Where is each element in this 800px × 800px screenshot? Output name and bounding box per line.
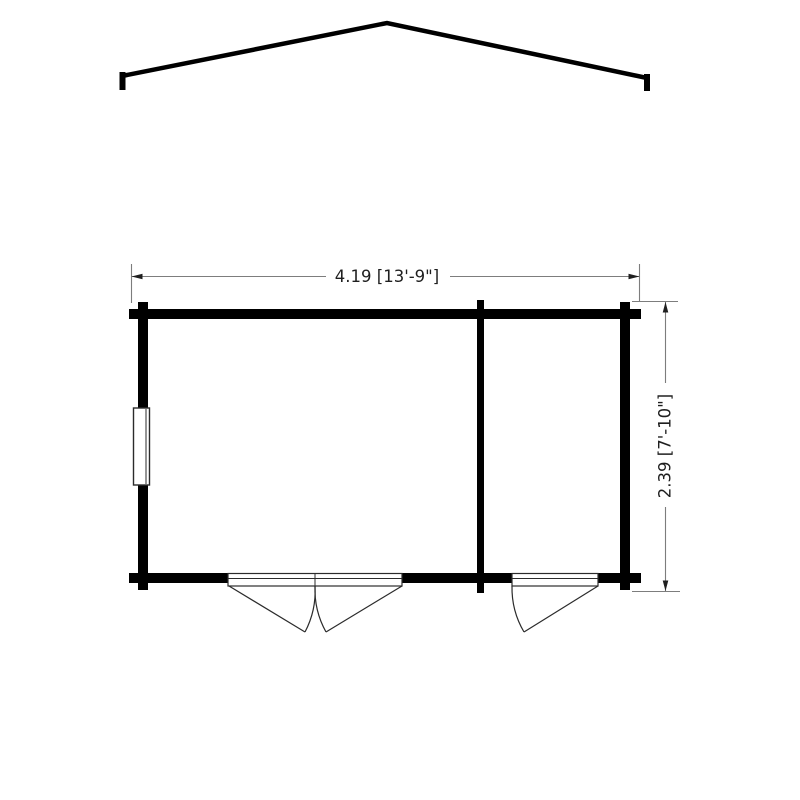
depth-arrow-top bbox=[663, 302, 669, 313]
roof-eave-tick-left bbox=[120, 72, 126, 90]
width-arrow-right bbox=[629, 274, 640, 280]
single-door-threshold bbox=[512, 574, 598, 587]
width-dimension-label: 4.19 [13'-9"] bbox=[335, 267, 439, 286]
exterior-walls bbox=[129, 300, 641, 593]
bottom-wall-middle-segment bbox=[402, 573, 512, 583]
bottom-wall-right-segment bbox=[598, 573, 641, 583]
single-door bbox=[512, 574, 598, 633]
depth-dimension: 2.39 [7'-10"] bbox=[632, 302, 680, 592]
left-window bbox=[134, 408, 150, 485]
width-arrow-left bbox=[132, 274, 143, 280]
roof-slope-lines bbox=[122, 23, 647, 78]
double-door-right-leaf-swing-arc bbox=[315, 586, 326, 632]
single-door-swing-arc bbox=[512, 586, 524, 632]
double-door bbox=[228, 574, 402, 633]
depth-arrow-bottom bbox=[663, 581, 669, 592]
floor-plan-drawing: 4.19 [13'-9"] 2.39 [7'-10"] bbox=[0, 0, 800, 800]
window-frame bbox=[134, 408, 150, 485]
right-wall bbox=[620, 302, 630, 590]
depth-dimension-label: 2.39 [7'-10"] bbox=[656, 394, 675, 498]
double-door-left-leaf-swing-arc bbox=[305, 586, 315, 632]
roof-eave-tick-right bbox=[644, 74, 650, 91]
partition-wall bbox=[477, 300, 484, 593]
width-dimension: 4.19 [13'-9"] bbox=[132, 263, 640, 303]
floor-plan-page: 4.19 [13'-9"] 2.39 [7'-10"] bbox=[0, 0, 800, 800]
single-door-leaf-panel bbox=[524, 586, 598, 632]
double-door-left-leaf-panel bbox=[229, 586, 305, 632]
top-wall bbox=[129, 309, 641, 319]
double-door-right-leaf-panel bbox=[326, 586, 402, 632]
roof-outline bbox=[120, 23, 651, 91]
